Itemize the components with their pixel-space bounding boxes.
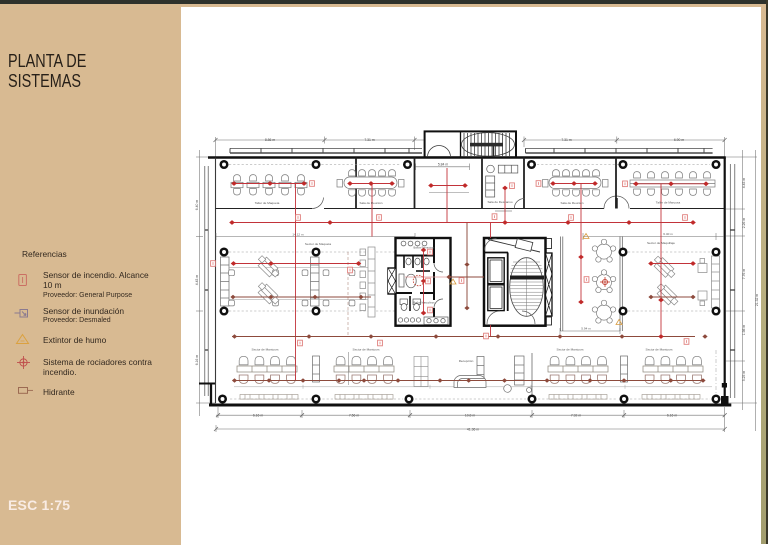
svg-text:Taller de Maqueta: Taller de Maqueta (255, 201, 280, 205)
svg-text:5.84 m: 5.84 m (438, 163, 449, 167)
svg-text:7.92 m: 7.92 m (571, 413, 582, 417)
svg-text:Sala de Reunión: Sala de Reunión (561, 201, 584, 205)
svg-text:10.8 m: 10.8 m (465, 413, 476, 417)
svg-text:Taller de Marcusa: Taller de Marcusa (656, 200, 681, 204)
svg-text:21.32 m: 21.32 m (755, 294, 759, 306)
svg-text:Recepción: Recepción (459, 359, 474, 363)
svg-text:6.40 m: 6.40 m (663, 232, 673, 236)
svg-text:Baños Masculinos: Baños Masculinos (413, 301, 435, 305)
svg-text:7.56 m: 7.56 m (349, 413, 360, 417)
svg-text:41.36 m: 41.36 m (467, 427, 479, 431)
svg-text:7.76 m: 7.76 m (742, 269, 746, 280)
svg-text:5.94 m: 5.94 m (581, 327, 591, 331)
svg-text:4.43 m: 4.43 m (195, 275, 199, 286)
svg-text:6.16 m: 6.16 m (195, 355, 199, 366)
svg-text:6.16 m: 6.16 m (253, 413, 264, 417)
svg-text:Sector de Mantours: Sector de Mantours (353, 348, 380, 352)
svg-text:7.31 m: 7.31 m (364, 138, 375, 142)
svg-text:8.86 m: 8.86 m (265, 138, 276, 142)
svg-text:Sala de Descanso: Sala de Descanso (487, 200, 512, 204)
svg-text:14.12 m: 14.12 m (292, 232, 304, 236)
svg-text:Sector de Maqueta: Sector de Maqueta (305, 242, 331, 246)
svg-text:6.16 m: 6.16 m (667, 413, 678, 417)
svg-text:4.43 m: 4.43 m (742, 178, 746, 189)
svg-text:6.90 m: 6.90 m (674, 138, 685, 142)
svg-text:2.26 m: 2.26 m (742, 218, 746, 229)
svg-text:Baños Femeninos: Baños Femeninos (414, 245, 436, 249)
svg-text:Sector de Mantours: Sector de Mantours (557, 348, 584, 352)
svg-text:Sector de Mantours: Sector de Mantours (646, 348, 673, 352)
svg-text:7.31 m: 7.31 m (561, 138, 572, 142)
svg-text:1.98 m: 1.98 m (742, 325, 746, 336)
svg-text:Sector de Maquillaje: Sector de Maquillaje (647, 241, 675, 245)
svg-text:6.40 m: 6.40 m (195, 200, 199, 211)
svg-text:Sector de Mantours: Sector de Mantours (252, 348, 279, 352)
svg-text:5.25 m: 5.25 m (742, 371, 746, 382)
svg-text:Sala de Reunión: Sala de Reunión (360, 201, 383, 205)
